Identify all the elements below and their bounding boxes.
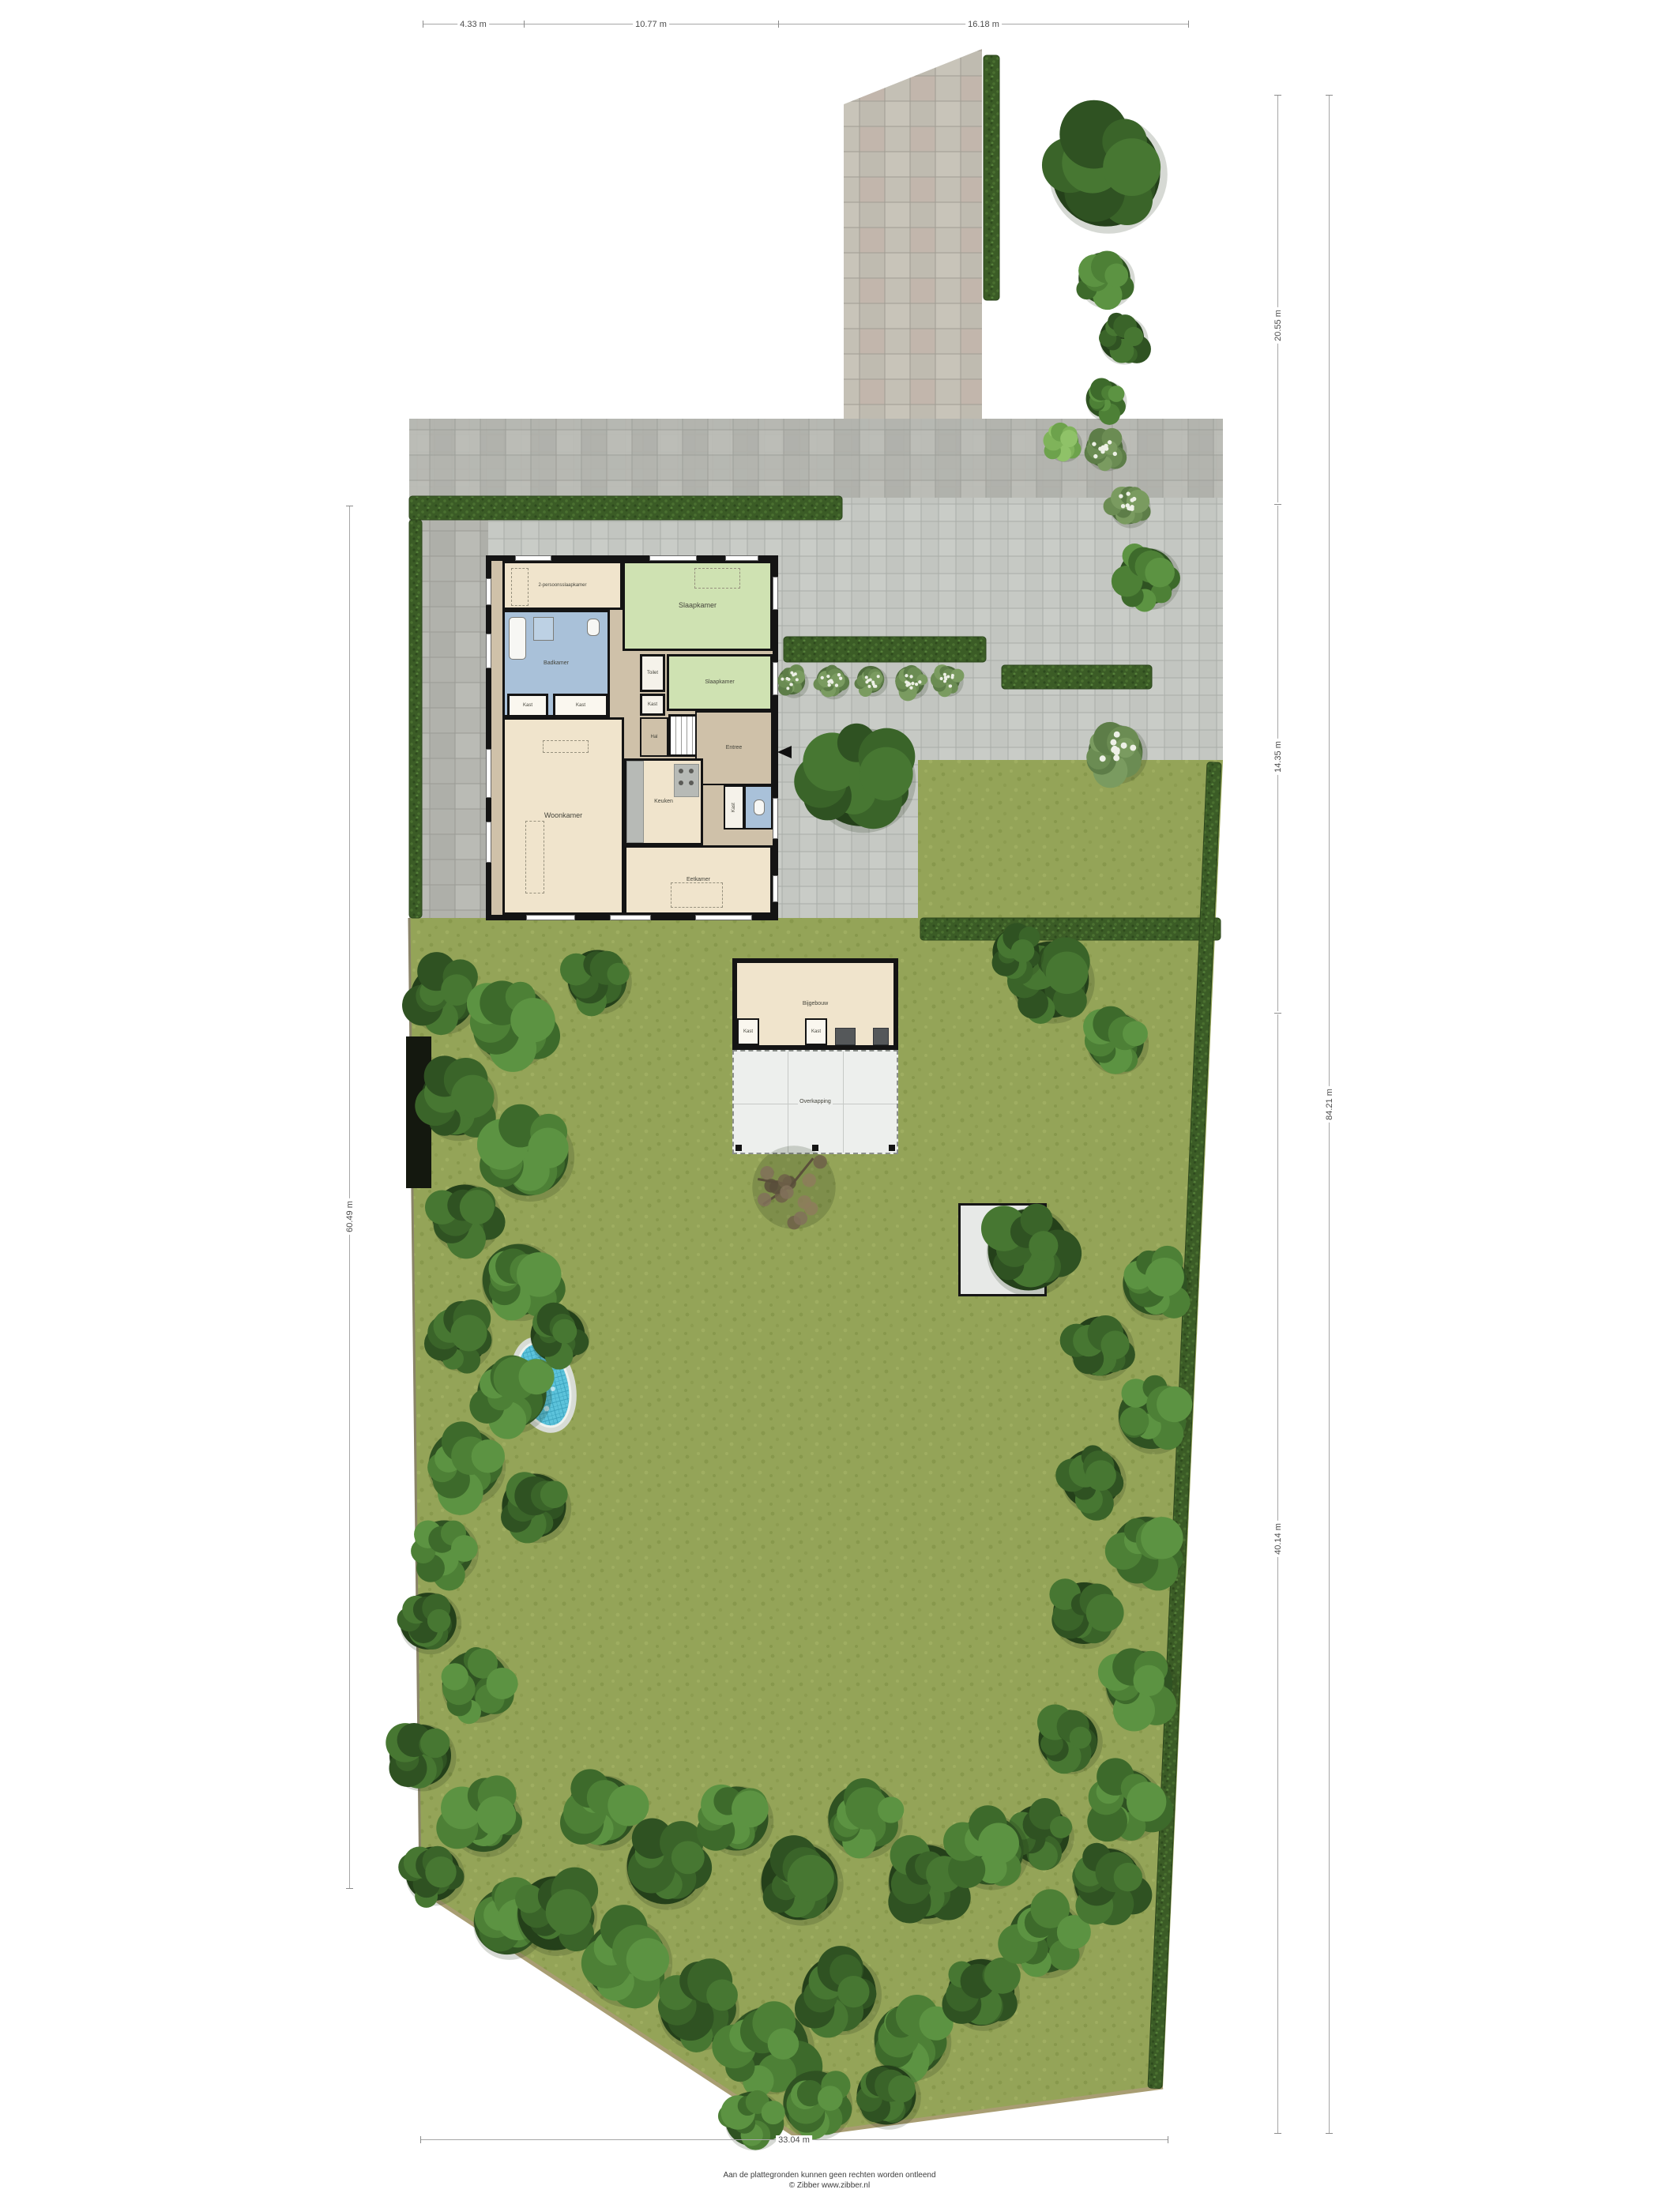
footer-disclaimer: Aan de plattegronden kunnen geen rechten… <box>0 2171 1659 2180</box>
site-plan-canvas: 2-persoonsslaapkamer Badkamer Kast Kast … <box>0 0 1659 2212</box>
dimension-label-right-inner-1: 20.55 m <box>1273 307 1283 344</box>
dimension-label-bottom: 33.04 m <box>776 2135 812 2145</box>
dimension-label-left: 60.49 m <box>345 1198 355 1235</box>
dimension-label-top1: 4.33 m <box>457 20 489 29</box>
dimension-annotations: 4.33 m 10.77 m 16.18 m 60.49 m 20.55 m 1… <box>0 0 1659 2212</box>
dimension-line-top <box>423 24 1189 24</box>
dimension-label-right-inner-3: 40.14 m <box>1273 1521 1283 1557</box>
dimension-line-left <box>349 506 350 1888</box>
dimension-label-top2: 10.77 m <box>633 20 669 29</box>
footer: Aan de plattegronden kunnen geen rechten… <box>0 2171 1659 2190</box>
dimension-label-right-inner-2: 14.35 m <box>1273 739 1283 775</box>
dimension-label-top3: 16.18 m <box>965 20 1002 29</box>
dimension-line-right-inner-1 <box>1277 95 1278 502</box>
footer-credit: © Zibber www.zibber.nl <box>0 2181 1659 2190</box>
dimension-line-right-inner-3 <box>1277 1014 1278 2133</box>
dimension-label-right-outer: 84.21 m <box>1325 1086 1334 1123</box>
